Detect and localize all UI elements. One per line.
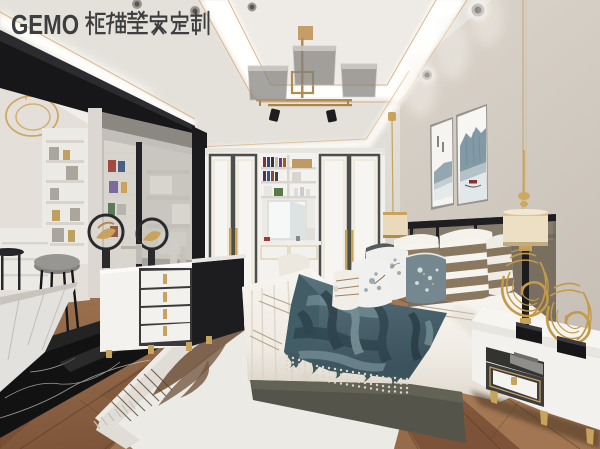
svg-text:GEMO: GEMO <box>11 9 79 40</box>
